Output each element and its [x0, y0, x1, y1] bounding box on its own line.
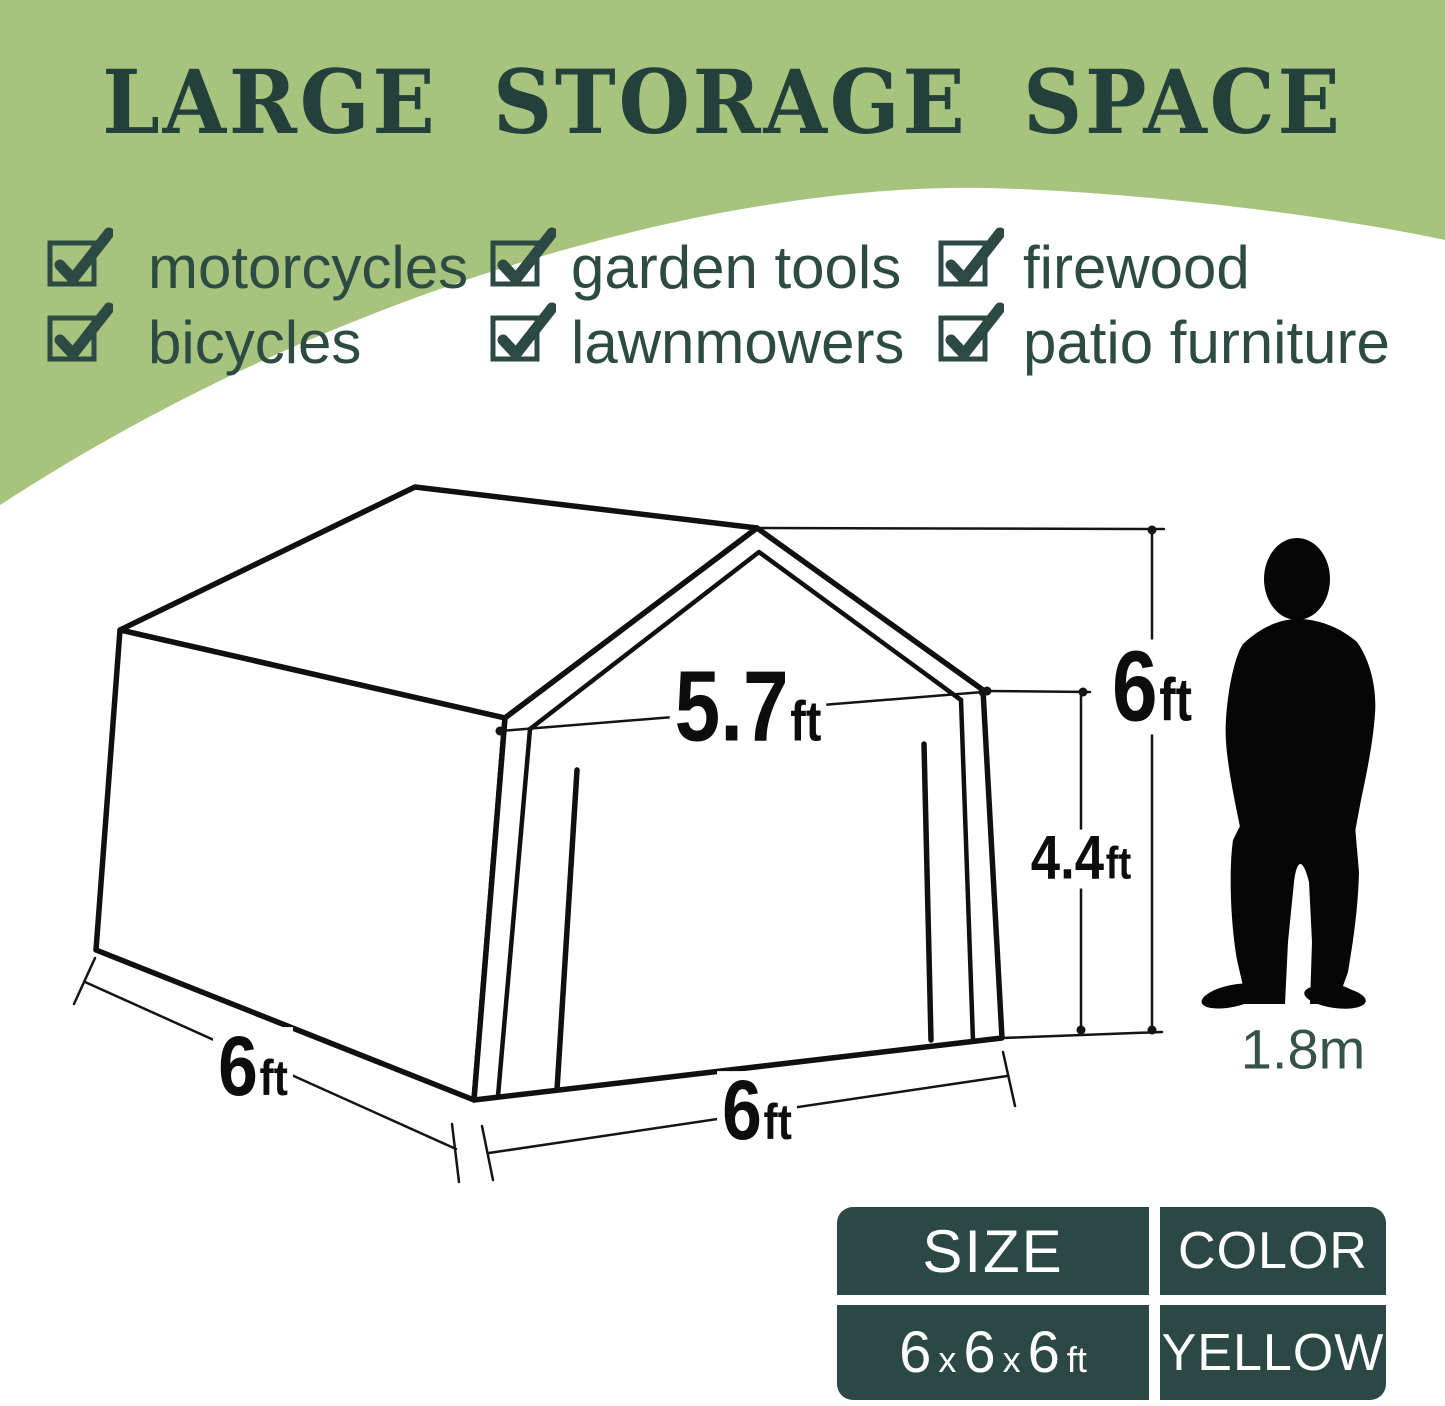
tent-drawing: [96, 487, 1002, 1100]
size-dim-2: 6: [963, 1324, 995, 1382]
silhouette-torso: [1226, 619, 1376, 832]
dimension-unit: ft: [1106, 843, 1131, 886]
product-infographic: LARGE STORAGE SPACE motorcycles garden t…: [0, 0, 1445, 1406]
person-silhouette: [1199, 538, 1375, 1013]
dimension-unit: ft: [790, 695, 821, 749]
size-dim-1: 6: [899, 1324, 931, 1382]
total-height-dimension: 6 ft: [1107, 640, 1197, 735]
dim-tick: [1003, 1052, 1015, 1106]
dimension-unit: ft: [1159, 672, 1192, 729]
size-value-text: 6 x 6 x 6 ft: [899, 1324, 1087, 1382]
person-height-label: 1.8m: [1241, 1017, 1366, 1082]
dimension-value: 6: [1112, 640, 1158, 735]
dimension-value: 4.4: [1031, 830, 1104, 889]
peak-reference-line: [757, 528, 1164, 529]
dim-tick: [452, 1124, 459, 1182]
size-unit: ft: [1067, 1342, 1087, 1378]
dim-tick: [74, 958, 95, 1004]
spec-table: SIZE COLOR 6 x 6 x 6 ft YELLOW: [837, 1207, 1386, 1400]
eave-reference-line: [985, 691, 1090, 692]
dimension-unit: ft: [764, 1099, 792, 1147]
spec-table-size-header: SIZE: [837, 1207, 1149, 1295]
dimension-value: 5.7: [675, 660, 789, 755]
dimension-value: 6: [218, 1027, 258, 1107]
size-dim-3: 6: [1028, 1324, 1060, 1382]
dimension-unit: ft: [260, 1055, 288, 1103]
door-width-dimension: 5.7 ft: [670, 660, 827, 755]
silhouette-legs: [1231, 826, 1361, 1004]
spec-table-color-header: COLOR: [1160, 1207, 1386, 1295]
size-separator: x: [938, 1342, 956, 1378]
spec-table-color-value: YELLOW: [1160, 1305, 1386, 1400]
front-width-dimension: 6 ft: [717, 1071, 797, 1151]
dimension-value: 6: [722, 1071, 762, 1151]
spec-table-size-value: 6 x 6 x 6 ft: [837, 1305, 1149, 1400]
size-separator: x: [1003, 1342, 1021, 1378]
side-depth-dimension: 6 ft: [213, 1027, 293, 1107]
door-height-dimension: 4.4 ft: [1026, 830, 1137, 889]
silhouette-head: [1264, 538, 1330, 620]
